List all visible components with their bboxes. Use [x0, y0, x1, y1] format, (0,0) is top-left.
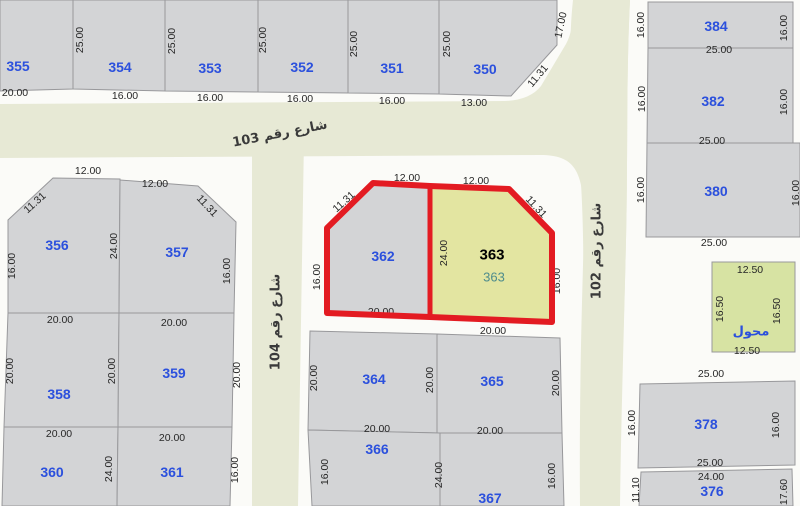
dimension-label: 25.00 [74, 27, 86, 53]
dimension-label: 20.00 [161, 317, 187, 329]
dimension-label: 24.00 [438, 240, 450, 266]
plot-number-384: 384 [704, 18, 728, 34]
street-104-label: شارع رقم 104 [269, 274, 284, 370]
plot-number-364: 364 [362, 371, 386, 387]
plot-number-358: 358 [47, 386, 71, 402]
plot-number-transformer: محول [733, 325, 770, 340]
dimension-label: 20.00 [2, 87, 28, 99]
plot-351[interactable] [348, 0, 439, 94]
dimension-label: 13.00 [461, 97, 487, 109]
plot-355[interactable] [0, 0, 73, 91]
dimension-label: 12.50 [734, 345, 760, 357]
dimension-label: 20.00 [308, 365, 320, 391]
plot-number-365: 365 [480, 373, 504, 389]
dimension-label: 25.00 [348, 31, 360, 57]
cadastral-map-viewport: 20.0016.0016.0016.0016.0013.0025.0025.00… [0, 0, 800, 506]
dimension-label: 25.00 [697, 457, 723, 469]
dimension-label: 25.00 [441, 31, 453, 57]
dimension-label: 16.00 [221, 258, 233, 284]
dimension-label: 16.00 [546, 463, 558, 489]
dimension-label: 16.00 [112, 90, 138, 102]
dimension-label: 20.00 [231, 362, 243, 388]
dimension-label: 20.00 [364, 423, 390, 435]
dimension-label: 16.00 [790, 180, 800, 206]
dimension-label: 12.00 [142, 178, 168, 190]
dimension-label: 16.00 [635, 12, 647, 38]
plot-number-362: 362 [371, 248, 395, 264]
plot-number-352: 352 [290, 59, 314, 75]
dimension-label: 25.00 [166, 28, 178, 54]
dimension-label: 20.00 [424, 367, 436, 393]
plot-358[interactable] [4, 313, 119, 427]
plot-354[interactable] [73, 0, 165, 91]
plot-number-380: 380 [704, 183, 728, 199]
plot-number-355: 355 [6, 58, 30, 74]
plot-number-382: 382 [701, 93, 725, 109]
selected-plot-subnumber: 363 [483, 270, 505, 285]
dimension-label: 11.10 [630, 477, 642, 503]
dimension-label: 25.00 [257, 27, 269, 53]
street-102-label: شارع رقم 102 [590, 203, 605, 299]
plot-number-354: 354 [108, 59, 132, 75]
dimension-label: 16.00 [626, 410, 638, 436]
dimension-label: 25.00 [706, 44, 732, 56]
dimension-label: 16.00 [311, 264, 323, 290]
dimension-label: 24.00 [103, 456, 115, 482]
dimension-label: 17.60 [778, 479, 790, 505]
plot-number-359: 359 [162, 365, 186, 381]
dimension-label: 20.00 [46, 428, 72, 440]
dimension-label: 20.00 [4, 358, 16, 384]
plot-number-353: 353 [198, 60, 222, 76]
dimension-label: 16.00 [778, 89, 790, 115]
plot-number-378: 378 [694, 416, 718, 432]
dimension-label: 20.00 [480, 325, 506, 337]
dimension-label: 16.00 [636, 86, 648, 112]
plot-number-367: 367 [478, 490, 502, 506]
dimension-label: 16.00 [319, 459, 331, 485]
dimension-label: 16.00 [287, 93, 313, 105]
dimension-label: 16.00 [379, 95, 405, 107]
plot-number-351: 351 [380, 60, 404, 76]
plot-number-366: 366 [365, 441, 389, 457]
dimension-label: 24.00 [108, 233, 120, 259]
dimension-label: 16.50 [714, 296, 726, 322]
plot-352[interactable] [258, 0, 348, 93]
dimension-label: 12.00 [75, 165, 101, 177]
plot-number-360: 360 [40, 464, 64, 480]
dimension-label: 16.00 [635, 177, 647, 203]
plot-number-356: 356 [45, 237, 69, 253]
dimension-label: 16.00 [197, 92, 223, 104]
dimension-label: 20.00 [159, 432, 185, 444]
dimension-label: 16.00 [229, 457, 241, 483]
plot-number-350: 350 [473, 61, 497, 77]
selected-plot-number: 363 [479, 247, 504, 264]
cadastral-map[interactable]: 20.0016.0016.0016.0016.0013.0025.0025.00… [0, 0, 800, 506]
dimension-label: 24.00 [698, 471, 724, 483]
dimension-label: 16.00 [770, 412, 782, 438]
dimension-label: 16.00 [778, 15, 790, 41]
dimension-label: 16.00 [6, 253, 18, 279]
dimension-label: 25.00 [699, 135, 725, 147]
plot-number-357: 357 [165, 244, 189, 260]
dimension-label: 20.00 [550, 370, 562, 396]
dimension-label: 20.00 [106, 358, 118, 384]
dimension-label: 24.00 [433, 462, 445, 488]
plot-353[interactable] [165, 0, 258, 92]
dimension-label: 25.00 [698, 368, 724, 380]
dimension-label: 25.00 [701, 237, 727, 249]
dimension-label: 16.50 [771, 298, 783, 324]
dimension-label: 12.50 [737, 264, 763, 276]
dimension-label: 20.00 [47, 314, 73, 326]
plot-number-361: 361 [160, 464, 184, 480]
plot-number-376: 376 [700, 483, 724, 499]
dimension-label: 20.00 [477, 425, 503, 437]
